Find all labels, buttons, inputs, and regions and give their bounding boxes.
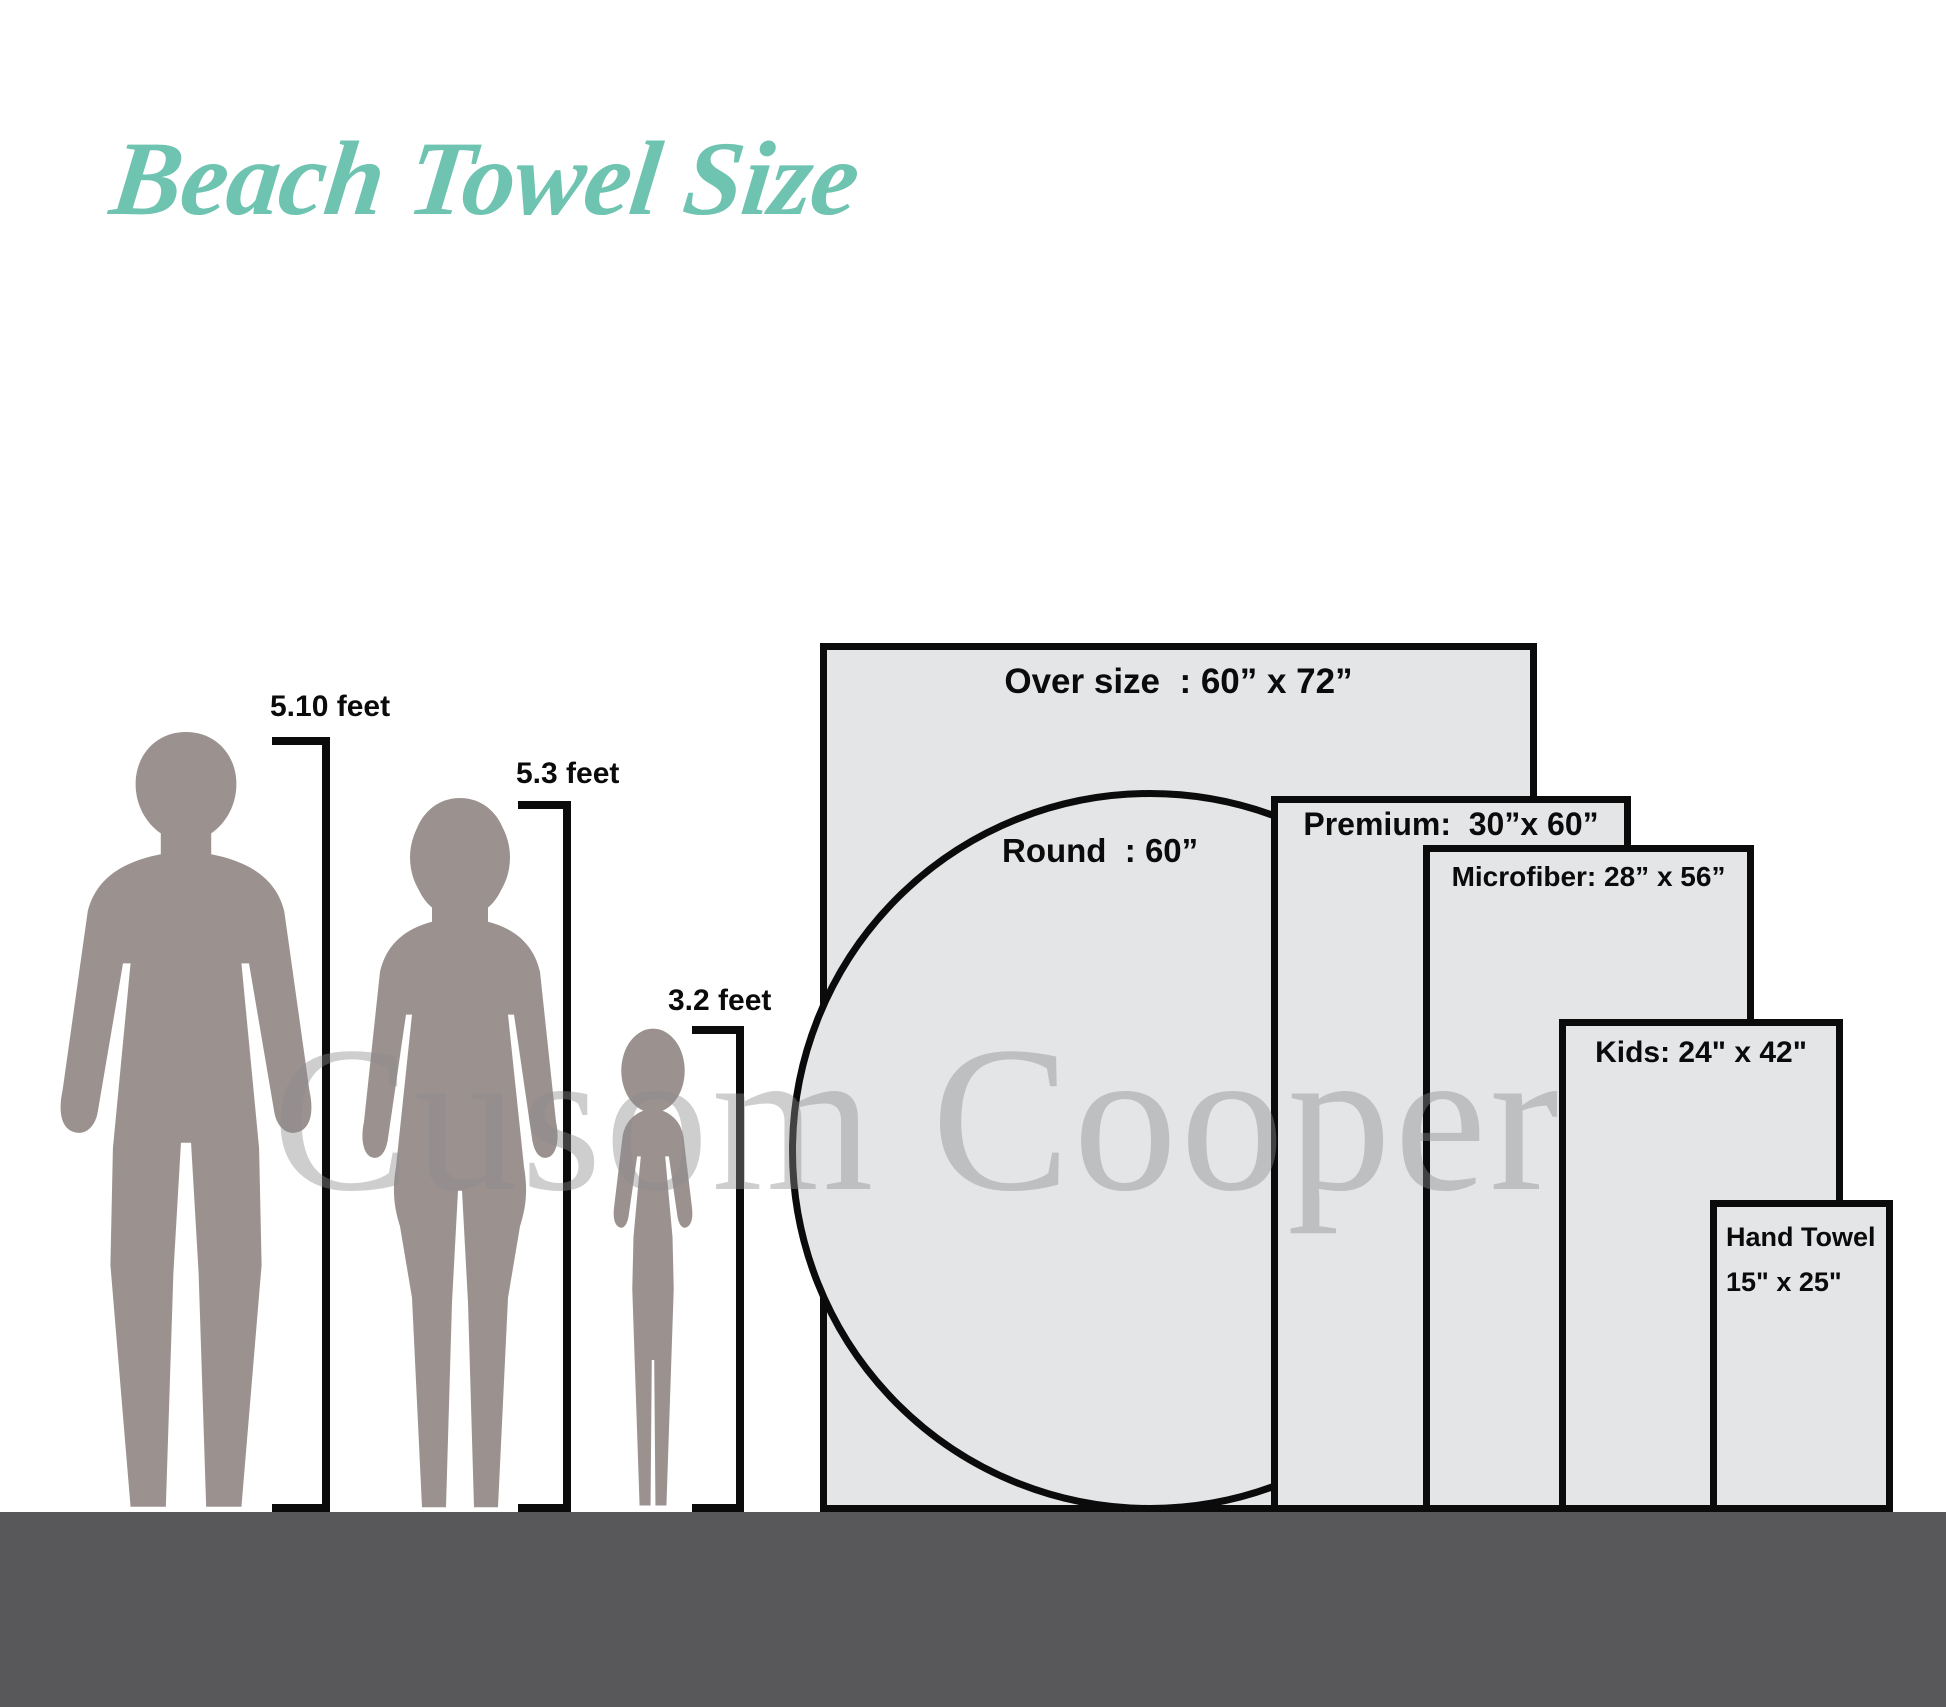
beach-towel-size-infographic: Beach Towel Size 5.10 feet 5.3 feet 3.2 … (0, 0, 1946, 1707)
oversize-towel-label: Over size : 60” x 72” (827, 662, 1530, 702)
page-title: Beach Towel Size (105, 118, 1020, 240)
ground-bar (0, 1512, 1946, 1707)
woman-bracket-line (563, 801, 571, 1512)
man-bracket-top-tick (272, 737, 329, 745)
man-bracket-line (322, 737, 330, 1512)
child-bracket-bottom-tick (692, 1504, 744, 1512)
man-silhouette (60, 732, 312, 1512)
hand-towel-label-line1: Hand Towel (1726, 1215, 1886, 1260)
woman-bracket-bottom-tick (518, 1504, 571, 1512)
woman-height-label: 5.3 feet (516, 757, 619, 791)
kids-towel-label: Kids: 24" x 42" (1566, 1036, 1836, 1070)
man-icon (60, 732, 312, 1512)
hand-towel-label-line2: 15" x 25" (1726, 1260, 1886, 1305)
child-silhouette (592, 1027, 714, 1512)
child-height-label: 3.2 feet (668, 984, 771, 1018)
woman-icon (360, 798, 560, 1512)
hand-towel-rect: Hand Towel 15" x 25" (1710, 1200, 1893, 1512)
woman-silhouette (360, 798, 560, 1512)
round-towel-label: Round : 60” (1002, 832, 1198, 870)
man-height-label: 5.10 feet (270, 690, 390, 724)
man-bracket-bottom-tick (272, 1504, 329, 1512)
child-icon (592, 1027, 714, 1512)
microfiber-towel-label: Microfiber: 28” x 56” (1430, 861, 1747, 893)
child-bracket-line (736, 1026, 744, 1512)
premium-towel-label: Premium: 30”x 60” (1278, 806, 1624, 843)
